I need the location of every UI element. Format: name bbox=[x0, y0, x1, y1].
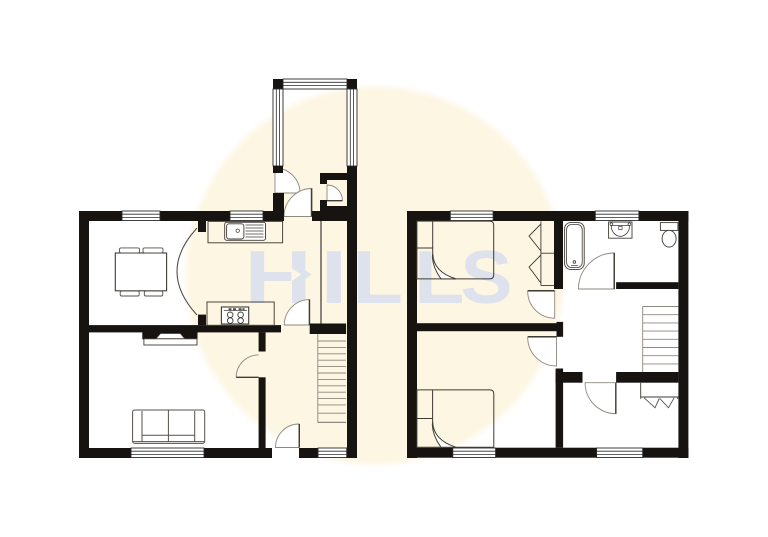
svg-text:S: S bbox=[460, 236, 512, 319]
svg-text:I: I bbox=[320, 236, 347, 320]
svg-text:L: L bbox=[353, 235, 403, 319]
